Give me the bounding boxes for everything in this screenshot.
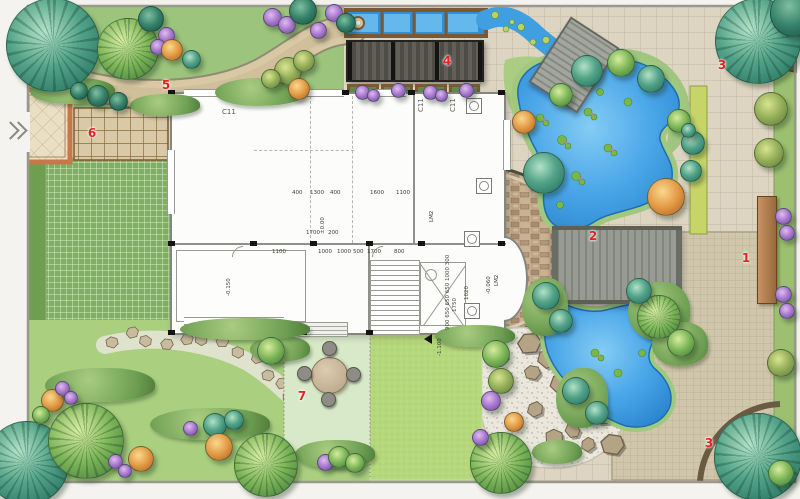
shrub-icon	[459, 83, 474, 98]
dimension: 1100	[396, 190, 410, 196]
wall-block	[366, 241, 373, 246]
shrub-icon	[182, 50, 201, 69]
shrub-icon	[481, 391, 501, 411]
area-marker-6: 6	[88, 126, 96, 140]
area-marker-7: 7	[298, 389, 306, 403]
wall-block	[366, 330, 373, 335]
pergola-post	[478, 42, 482, 80]
dimension: 1700	[367, 249, 381, 255]
landscape-site-plan: C11 C11 C11 LM2 LM2 400 1300 400 1600 11…	[0, 0, 800, 499]
tree-icon	[637, 65, 665, 93]
stool	[321, 392, 336, 407]
shrub-icon	[205, 433, 233, 461]
shrub-icon	[775, 286, 792, 303]
door-label: LM2	[494, 275, 500, 286]
shrub-icon	[32, 406, 50, 424]
tree-icon	[754, 138, 784, 168]
elevation-marker-icon	[424, 334, 432, 344]
basin-icon	[425, 269, 437, 281]
shrub-icon	[336, 13, 356, 33]
dimension: 400	[292, 190, 303, 196]
stool	[346, 367, 361, 382]
dimension: 1000	[318, 249, 332, 255]
south-margin	[0, 482, 800, 499]
shrub-icon	[779, 303, 795, 319]
window	[503, 120, 511, 170]
stool	[322, 341, 337, 356]
shrub-icon	[391, 83, 406, 98]
area-marker-3-bottom: 3	[705, 436, 713, 450]
tree-icon	[571, 55, 603, 87]
stairs	[370, 260, 420, 335]
shrub-icon	[64, 391, 78, 405]
dimension: 1750	[452, 298, 458, 312]
tree-icon	[714, 413, 800, 499]
beam-line	[310, 96, 311, 243]
stool	[297, 366, 312, 381]
area-marker-2: 2	[589, 229, 597, 243]
tree-icon	[667, 329, 695, 357]
elevation-label: -0.150	[226, 278, 232, 296]
wall-block	[168, 330, 175, 335]
interior-wall	[170, 243, 506, 245]
shrub-icon	[435, 89, 448, 102]
shrub-icon	[779, 225, 795, 241]
round-table	[311, 357, 348, 394]
pergola-post	[348, 42, 352, 80]
tree-icon	[626, 278, 652, 304]
elevation-label: ±0.00	[320, 217, 326, 234]
tree-icon	[523, 152, 565, 194]
wall-block	[498, 241, 505, 246]
dimension: 1300	[310, 190, 324, 196]
elevation-label: -0.060	[486, 276, 492, 294]
column	[476, 178, 492, 194]
interior-wall	[413, 92, 415, 245]
shrub-icon	[128, 446, 154, 472]
tree-icon	[549, 83, 573, 107]
window-label: C11	[417, 98, 425, 112]
shrub-icon	[224, 410, 244, 430]
shrub-icon	[681, 123, 696, 138]
pergola-post	[435, 42, 439, 80]
shrub-icon	[775, 208, 792, 225]
tree-icon	[234, 433, 298, 497]
area-marker-4: 4	[443, 54, 451, 68]
dimension: 1100	[272, 249, 286, 255]
shrub-icon	[345, 453, 365, 473]
shrub-icon	[367, 89, 380, 102]
beam-line	[352, 96, 353, 243]
area-marker-1: 1	[742, 251, 750, 265]
shrub-icon	[472, 429, 489, 446]
wall-block	[250, 241, 257, 246]
column	[464, 303, 480, 319]
shrub-icon	[288, 78, 310, 100]
shrub-icon	[109, 92, 128, 111]
dimension: 800	[394, 249, 405, 255]
area-marker-3-top: 3	[718, 58, 726, 72]
dimension: 200	[328, 230, 339, 236]
column	[466, 98, 482, 114]
hedge-mass	[532, 440, 582, 464]
shrub-icon	[87, 85, 109, 107]
dimension-chain: 900 650 650 650 1000 300	[445, 255, 451, 330]
grass-paver-court	[46, 158, 170, 322]
tree-icon	[562, 377, 590, 405]
tree-icon	[607, 49, 635, 77]
tree-icon	[6, 0, 100, 92]
shrub-icon	[504, 412, 524, 432]
tree-icon	[647, 178, 685, 216]
dimension: 1020	[464, 286, 470, 300]
dimension: 1600	[370, 190, 384, 196]
tree-icon	[754, 92, 788, 126]
dimension: 1700	[306, 230, 320, 236]
timber-pergola-area-4	[346, 40, 484, 82]
tree-icon	[257, 337, 285, 365]
window-label: C11	[222, 108, 236, 116]
bathroom	[420, 262, 466, 326]
shrub-icon	[310, 22, 327, 39]
window-label: C11	[449, 98, 457, 112]
wall-block	[418, 241, 425, 246]
tree-icon	[293, 50, 315, 72]
tree-icon	[549, 309, 573, 333]
pergola-post	[391, 42, 395, 80]
shrub-icon	[261, 69, 281, 89]
wall-block	[310, 241, 317, 246]
shrub-icon	[118, 464, 132, 478]
tree-icon	[532, 282, 560, 310]
shrub-icon	[70, 82, 88, 100]
window	[167, 150, 175, 214]
tree-icon	[767, 349, 795, 377]
column	[464, 231, 480, 247]
tree-icon	[585, 401, 609, 425]
area-marker-5: 5	[162, 78, 170, 92]
elevation-label: -1.100	[437, 338, 443, 356]
fenced-lawn	[370, 332, 482, 480]
wall-block	[408, 90, 415, 95]
dimension: 500	[353, 249, 364, 255]
wall-block	[498, 90, 505, 95]
tree-icon	[680, 160, 702, 182]
tree-icon	[482, 340, 510, 368]
dimension: 400	[330, 190, 341, 196]
dimension: 1000	[337, 249, 351, 255]
hedge-mass	[130, 94, 200, 116]
shrub-icon	[512, 110, 536, 134]
wall-block	[168, 241, 175, 246]
hedge-mass	[180, 318, 310, 340]
wall-block	[342, 90, 349, 95]
tree-icon	[768, 460, 794, 486]
beam-line	[254, 150, 354, 151]
shrub-icon	[183, 421, 198, 436]
garden-bench	[757, 196, 777, 304]
shrub-icon	[161, 39, 183, 61]
door-label: LM2	[429, 211, 435, 222]
